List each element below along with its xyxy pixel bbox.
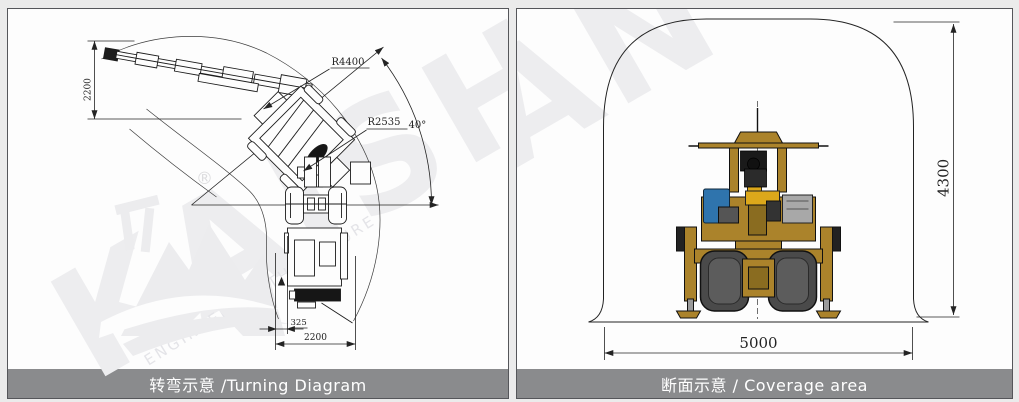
tunnel-height-label: 4300 xyxy=(935,159,953,197)
coverage-area-drawing: 4300 5000 xyxy=(517,9,1013,371)
angle-label: 40° xyxy=(409,120,427,131)
coverage-area-caption: 断面示意 / Coverage area xyxy=(517,369,1012,398)
machine-width-label: 2200 xyxy=(304,333,327,343)
turning-diagram-panel: KAISHAN ® ENGINEERING THE FUTURE xyxy=(7,8,509,399)
machine-front-unit xyxy=(235,73,372,210)
coverage-area-panel: KAISHAN xyxy=(516,8,1013,399)
page: KAISHAN ® ENGINEERING THE FUTURE xyxy=(0,0,1019,402)
inner-radius-label: R2535 xyxy=(368,117,401,128)
turning-diagram-caption: 转弯示意 /Turning Diagram xyxy=(8,369,508,398)
outer-radius-label: R4400 xyxy=(332,57,365,68)
boom-height-label: 2200 xyxy=(84,78,94,101)
turning-diagram-drawing: 40° xyxy=(8,9,509,371)
machine-boom xyxy=(102,44,312,101)
machine-front-view xyxy=(677,101,841,319)
tunnel-width-label: 5000 xyxy=(739,334,777,352)
rear-offset-label: 325 xyxy=(291,318,307,328)
